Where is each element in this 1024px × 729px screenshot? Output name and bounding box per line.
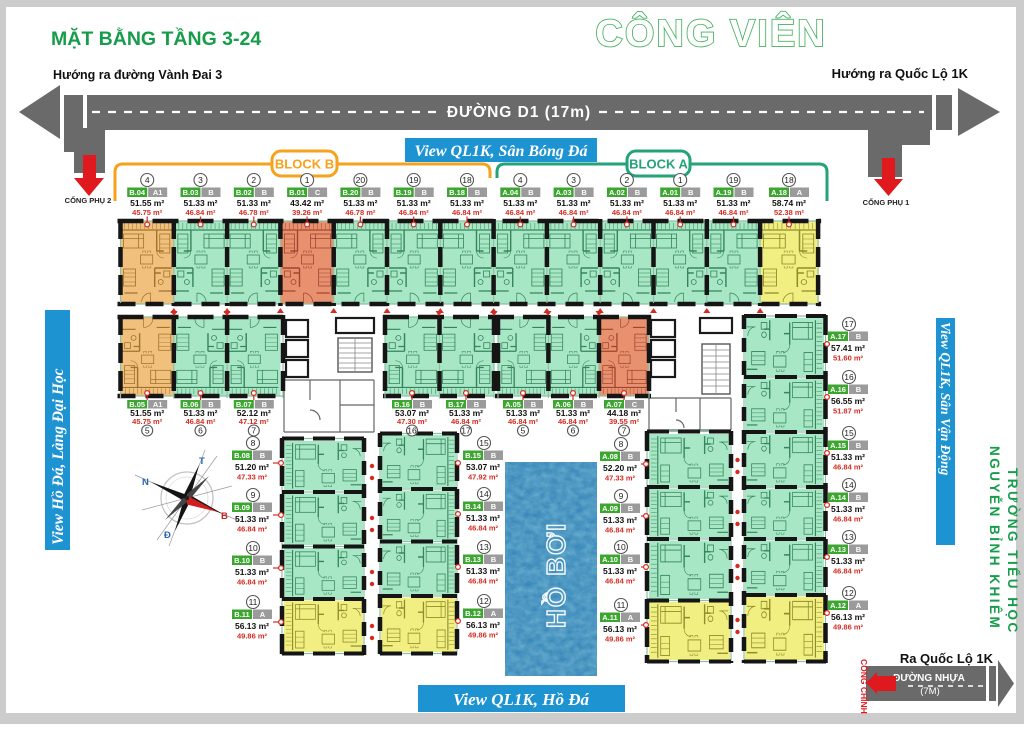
- svg-text:B: B: [581, 188, 587, 197]
- svg-text:2: 2: [251, 175, 256, 185]
- svg-text:43.42 m²: 43.42 m²: [290, 198, 324, 208]
- svg-text:B: B: [628, 555, 634, 564]
- svg-text:ĐƯỜNG NHỰA: ĐƯỜNG NHỰA: [893, 671, 965, 684]
- svg-text:51.33 m²: 51.33 m²: [235, 567, 269, 577]
- svg-text:7: 7: [622, 426, 627, 436]
- svg-text:A: A: [491, 609, 497, 618]
- svg-text:51.33 m²: 51.33 m²: [716, 198, 750, 208]
- svg-text:46.84 m²: 46.84 m²: [605, 526, 636, 535]
- svg-text:B.14: B.14: [465, 502, 482, 511]
- svg-text:6: 6: [571, 426, 576, 436]
- svg-text:46.84 m²: 46.84 m²: [833, 463, 864, 472]
- svg-text:58.74 m²: 58.74 m²: [772, 198, 806, 208]
- svg-text:45.75 m²: 45.75 m²: [132, 208, 163, 217]
- svg-text:1: 1: [305, 175, 310, 185]
- svg-text:46.84 m²: 46.84 m²: [505, 208, 536, 217]
- svg-text:7: 7: [251, 426, 256, 436]
- svg-text:N: N: [142, 477, 149, 488]
- svg-text:51.87 m²: 51.87 m²: [833, 407, 864, 416]
- svg-text:4: 4: [145, 175, 150, 185]
- svg-text:B: B: [528, 188, 534, 197]
- svg-text:A.14: A.14: [830, 493, 847, 502]
- svg-text:A.11: A.11: [602, 613, 617, 622]
- svg-text:B: B: [856, 441, 862, 450]
- svg-text:51.33 m²: 51.33 m²: [831, 556, 865, 566]
- svg-text:B.13: B.13: [465, 555, 481, 564]
- svg-text:A.15: A.15: [830, 441, 846, 450]
- svg-text:46.84 m²: 46.84 m²: [399, 208, 430, 217]
- svg-text:B: B: [856, 493, 862, 502]
- svg-text:B: B: [635, 188, 641, 197]
- svg-text:51.33 m²: 51.33 m²: [831, 504, 865, 514]
- svg-text:B: B: [262, 188, 268, 197]
- svg-text:46.84 m²: 46.84 m²: [833, 515, 864, 524]
- svg-text:47.92 m²: 47.92 m²: [468, 473, 499, 482]
- svg-text:46.84 m²: 46.84 m²: [559, 208, 590, 217]
- svg-text:B: B: [260, 503, 266, 512]
- svg-text:A.10: A.10: [602, 555, 618, 564]
- svg-text:51.20 m²: 51.20 m²: [235, 462, 269, 472]
- svg-text:8: 8: [251, 438, 256, 448]
- svg-text:16: 16: [407, 426, 417, 436]
- svg-text:B.19: B.19: [396, 188, 412, 197]
- svg-text:56.13 m²: 56.13 m²: [235, 621, 269, 631]
- svg-text:View Hồ Đá, Làng Đại Học: View Hồ Đá, Làng Đại Học: [50, 368, 67, 545]
- svg-text:15: 15: [844, 428, 854, 438]
- svg-text:B: B: [421, 188, 427, 197]
- svg-text:B.10: B.10: [234, 556, 250, 565]
- svg-text:16: 16: [844, 372, 854, 382]
- svg-text:51.33 m²: 51.33 m²: [450, 198, 484, 208]
- svg-text:5: 5: [521, 426, 526, 436]
- svg-text:3: 3: [198, 175, 203, 185]
- svg-text:46.84 m²: 46.84 m²: [468, 524, 499, 533]
- svg-text:B.18: B.18: [449, 188, 465, 197]
- svg-text:15: 15: [479, 438, 489, 448]
- svg-text:52.20 m²: 52.20 m²: [603, 463, 637, 473]
- svg-text:49.86 m²: 49.86 m²: [833, 623, 864, 632]
- svg-text:8: 8: [619, 439, 624, 449]
- svg-text:11: 11: [617, 600, 626, 610]
- svg-text:53.07 m²: 53.07 m²: [466, 462, 500, 472]
- svg-text:A: A: [628, 613, 634, 622]
- svg-text:ĐƯỜNG D1 (17m): ĐƯỜNG D1 (17m): [447, 103, 591, 121]
- svg-text:B.02: B.02: [236, 188, 252, 197]
- svg-text:TRƯỜNG TIỂU HỌC: TRƯỜNG TIỂU HỌC: [1005, 468, 1020, 635]
- svg-text:A.09: A.09: [602, 504, 618, 513]
- svg-text:46.84 m²: 46.84 m²: [718, 208, 749, 217]
- svg-text:B: B: [491, 555, 497, 564]
- svg-text:51.33 m²: 51.33 m²: [183, 198, 217, 208]
- svg-text:5: 5: [145, 426, 150, 436]
- svg-text:17: 17: [844, 319, 854, 329]
- svg-text:A.01: A.01: [662, 188, 678, 197]
- svg-text:View QL1K, Sân Bóng Đá: View QL1K, Sân Bóng Đá: [415, 143, 589, 160]
- svg-text:46.84 m²: 46.84 m²: [833, 567, 864, 576]
- svg-text:B.01: B.01: [289, 188, 305, 197]
- svg-text:Hướng ra Quốc Lộ 1K: Hướng ra Quốc Lộ 1K: [832, 66, 969, 81]
- svg-text:20: 20: [356, 175, 366, 185]
- svg-text:B: B: [368, 188, 374, 197]
- svg-text:Ra Quốc Lộ 1K: Ra Quốc Lộ 1K: [900, 651, 994, 666]
- svg-text:39.26 m²: 39.26 m²: [292, 208, 323, 217]
- svg-text:1: 1: [678, 175, 683, 185]
- svg-text:A.16: A.16: [830, 385, 846, 394]
- svg-text:B: B: [741, 188, 747, 197]
- svg-text:51.33 m²: 51.33 m²: [610, 198, 644, 208]
- svg-text:51.33 m²: 51.33 m²: [235, 514, 269, 524]
- svg-text:56.55 m²: 56.55 m²: [831, 396, 865, 406]
- svg-text:B: B: [688, 188, 694, 197]
- svg-text:B: B: [491, 502, 497, 511]
- svg-text:A.13: A.13: [830, 545, 846, 554]
- svg-text:C: C: [315, 188, 321, 197]
- svg-text:51.33 m²: 51.33 m²: [663, 198, 697, 208]
- svg-text:A: A: [260, 610, 266, 619]
- svg-text:46.78 m²: 46.78 m²: [345, 208, 376, 217]
- svg-text:Đ: Đ: [164, 530, 171, 541]
- svg-text:51.33 m²: 51.33 m²: [603, 566, 637, 576]
- svg-text:57.41 m²: 57.41 m²: [831, 343, 865, 353]
- svg-text:B: B: [856, 545, 862, 554]
- svg-text:B: B: [208, 188, 214, 197]
- svg-text:B.20: B.20: [342, 188, 358, 197]
- svg-text:46.78 m²: 46.78 m²: [239, 208, 270, 217]
- svg-text:46.84 m²: 46.84 m²: [237, 525, 268, 534]
- svg-text:CỔNG PHỤ 1: CỔNG PHỤ 1: [863, 198, 910, 207]
- svg-text:51.60 m²: 51.60 m²: [833, 354, 864, 363]
- svg-text:A.18: A.18: [771, 188, 787, 197]
- svg-text:B: B: [221, 511, 228, 522]
- svg-text:HỒ BƠI: HỒ BƠI: [541, 522, 571, 628]
- svg-text:46.84 m²: 46.84 m²: [185, 208, 216, 217]
- svg-text:B: B: [856, 385, 862, 394]
- svg-text:(7M): (7M): [920, 686, 940, 697]
- svg-text:47.33 m²: 47.33 m²: [605, 474, 636, 483]
- svg-text:B: B: [628, 452, 634, 461]
- svg-text:56.13 m²: 56.13 m²: [466, 620, 500, 630]
- svg-text:3: 3: [571, 175, 576, 185]
- svg-text:49.86 m²: 49.86 m²: [237, 632, 268, 641]
- svg-text:51.33 m²: 51.33 m²: [466, 513, 500, 523]
- svg-text:B.12: B.12: [465, 609, 481, 618]
- svg-text:B.09: B.09: [234, 503, 250, 512]
- svg-text:CỔNG PHỤ 2: CỔNG PHỤ 2: [65, 196, 112, 205]
- svg-text:51.55 m²: 51.55 m²: [130, 198, 164, 208]
- svg-text:B.08: B.08: [234, 451, 250, 460]
- svg-text:A.03: A.03: [556, 188, 572, 197]
- svg-text:2: 2: [625, 175, 630, 185]
- svg-text:52.38 m²: 52.38 m²: [774, 208, 805, 217]
- svg-text:NGUYỄN BỈNH KHIÊM: NGUYỄN BỈNH KHIÊM: [987, 446, 1002, 630]
- svg-text:13: 13: [479, 542, 489, 552]
- svg-text:46.84 m²: 46.84 m²: [452, 208, 483, 217]
- svg-text:6: 6: [198, 426, 203, 436]
- svg-text:A.04: A.04: [502, 188, 519, 197]
- svg-text:51.33 m²: 51.33 m²: [466, 566, 500, 576]
- svg-text:49.86 m²: 49.86 m²: [605, 635, 636, 644]
- svg-text:46.84 m²: 46.84 m²: [612, 208, 643, 217]
- svg-text:12: 12: [479, 596, 489, 606]
- svg-text:47.33 m²: 47.33 m²: [237, 473, 268, 482]
- svg-text:B.03: B.03: [183, 188, 199, 197]
- svg-text:CÔNG VIÊN: CÔNG VIÊN: [595, 10, 826, 55]
- svg-text:56.13 m²: 56.13 m²: [831, 612, 865, 622]
- svg-text:18: 18: [462, 175, 472, 185]
- svg-text:A: A: [856, 601, 862, 610]
- svg-text:12: 12: [844, 588, 854, 598]
- svg-text:56.13 m²: 56.13 m²: [603, 624, 637, 634]
- svg-text:51.33 m²: 51.33 m²: [237, 198, 271, 208]
- svg-text:46.84 m²: 46.84 m²: [468, 577, 499, 586]
- svg-text:B: B: [260, 451, 266, 460]
- svg-text:A.08: A.08: [602, 452, 618, 461]
- svg-text:14: 14: [479, 489, 489, 499]
- svg-text:A.12: A.12: [830, 601, 846, 610]
- svg-text:MẶT BẰNG TẦNG 3-24: MẶT BẰNG TẦNG 3-24: [51, 26, 261, 50]
- svg-text:A.19: A.19: [716, 188, 732, 197]
- svg-text:46.84 m²: 46.84 m²: [237, 578, 268, 587]
- svg-text:51.33 m²: 51.33 m²: [397, 198, 431, 208]
- svg-text:49.86 m²: 49.86 m²: [468, 631, 499, 640]
- svg-text:B: B: [628, 504, 634, 513]
- svg-text:B.04: B.04: [129, 188, 146, 197]
- svg-text:10: 10: [616, 542, 626, 552]
- svg-text:19: 19: [409, 175, 419, 185]
- svg-text:A: A: [797, 188, 803, 197]
- svg-text:46.84 m²: 46.84 m²: [605, 577, 636, 586]
- svg-text:BLOCK B: BLOCK B: [275, 157, 334, 172]
- svg-text:9: 9: [251, 490, 256, 500]
- svg-text:B: B: [856, 332, 862, 341]
- svg-text:14: 14: [844, 480, 854, 490]
- svg-text:51.33 m²: 51.33 m²: [343, 198, 377, 208]
- svg-text:BLOCK A: BLOCK A: [629, 157, 688, 172]
- svg-text:A.02: A.02: [609, 188, 625, 197]
- svg-text:10: 10: [248, 543, 258, 553]
- svg-text:View QL1K, Hồ Đá: View QL1K, Hồ Đá: [453, 690, 590, 709]
- svg-text:11: 11: [249, 597, 258, 607]
- svg-text:51.33 m²: 51.33 m²: [603, 515, 637, 525]
- svg-text:46.84 m²: 46.84 m²: [665, 208, 696, 217]
- svg-text:17: 17: [461, 426, 471, 436]
- svg-text:51.33 m²: 51.33 m²: [557, 198, 591, 208]
- svg-text:13: 13: [844, 532, 854, 542]
- svg-text:Hướng ra đường Vành Đai 3: Hướng ra đường Vành Đai 3: [53, 68, 222, 82]
- svg-text:View QL1K, Sân Vận Động: View QL1K, Sân Vận Động: [938, 322, 953, 476]
- svg-text:B: B: [491, 451, 497, 460]
- svg-text:51.33 m²: 51.33 m²: [831, 452, 865, 462]
- svg-text:CỔNG CHÍNH: CỔNG CHÍNH: [859, 659, 870, 714]
- svg-text:B: B: [260, 556, 266, 565]
- svg-text:19: 19: [729, 175, 739, 185]
- svg-text:A1: A1: [153, 188, 163, 197]
- svg-text:A.17: A.17: [830, 332, 846, 341]
- svg-text:18: 18: [784, 175, 794, 185]
- svg-text:B.11: B.11: [234, 610, 249, 619]
- svg-text:T: T: [199, 456, 205, 467]
- svg-text:51.33 m²: 51.33 m²: [503, 198, 537, 208]
- svg-text:4: 4: [518, 175, 523, 185]
- svg-text:B.15: B.15: [465, 451, 481, 460]
- svg-text:9: 9: [619, 491, 624, 501]
- svg-text:B: B: [475, 188, 481, 197]
